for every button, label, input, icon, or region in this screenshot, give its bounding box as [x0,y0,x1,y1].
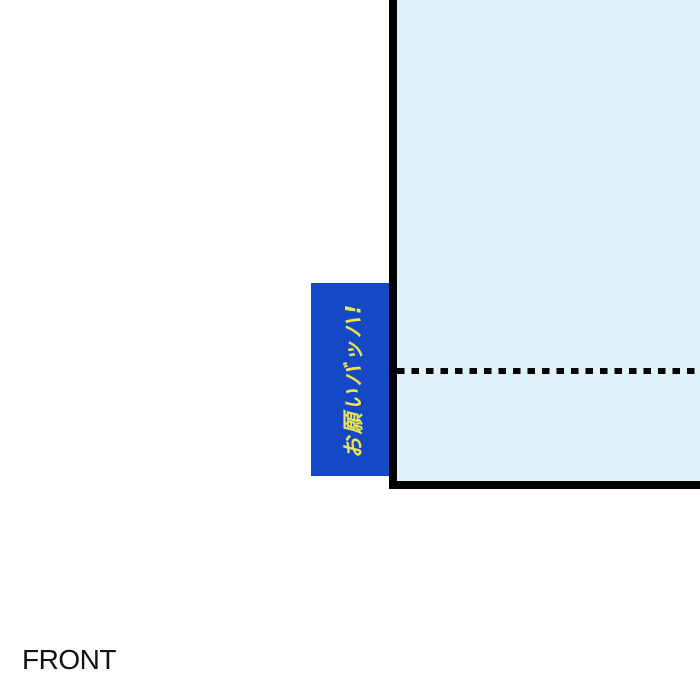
fabric-tag-text: お願いバッハ! [337,301,367,458]
fold-dashed-line [397,368,700,374]
front-view-label: FRONT [22,644,116,676]
fabric-tag: お願いバッハ! [311,283,393,476]
front-panel [389,0,700,489]
mockup-canvas: お願いバッハ! FRONT [0,0,700,700]
